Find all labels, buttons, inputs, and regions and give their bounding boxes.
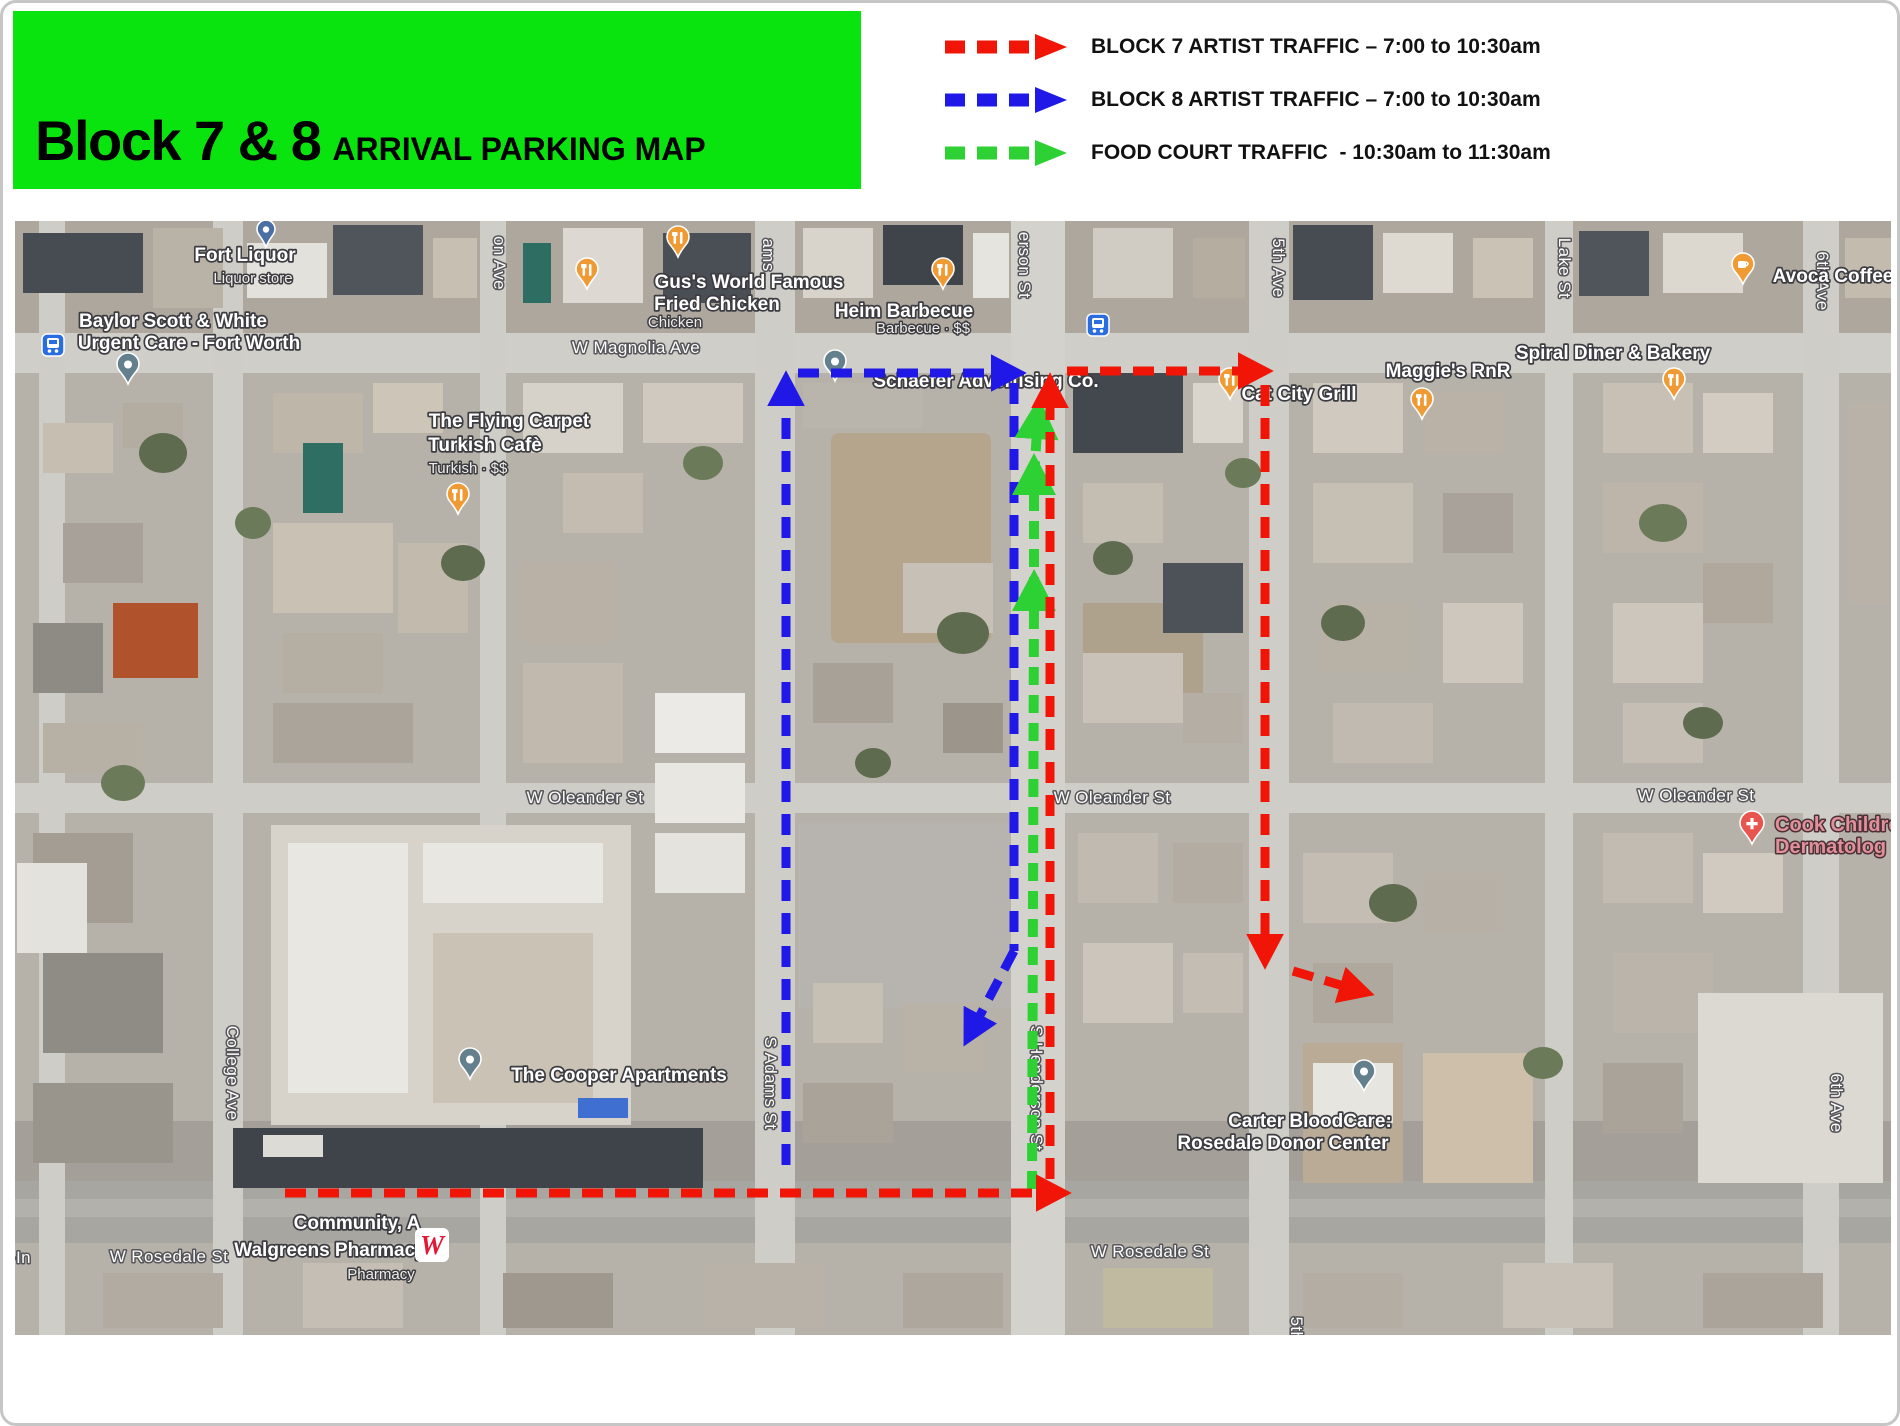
walgreens-w-glyph: W (420, 1230, 446, 1260)
poi-label: Avoca Coffee (1773, 266, 1891, 287)
street-label: 5th Ave (1269, 238, 1288, 297)
poi-label: Fried Chicken (654, 294, 780, 315)
legend-item-label: FOOD COURT TRAFFIC - 10:30am to 11:30am (1091, 141, 1551, 165)
page-title: Block 7 & 8 (35, 113, 320, 169)
poi-label: Heim Barbecue (835, 301, 973, 322)
poi-label: Chicken (648, 314, 702, 331)
legend-item-foodcourt: FOOD COURT TRAFFIC - 10:30am to 11:30am (941, 135, 1551, 171)
poi-label: Dermatolog (1775, 836, 1886, 858)
street-label: Lake St (1555, 238, 1574, 298)
legend-arrow-icon (941, 33, 1073, 61)
poi-label: Turkish · $$ (429, 460, 508, 477)
street-label: erson St (1015, 232, 1034, 299)
poi-label: Fort Liquor (194, 245, 296, 266)
street-label: S Adams St (761, 1037, 780, 1130)
title-group: Block 7 & 8 ARRIVAL PARKING MAP (35, 113, 706, 169)
slide: Block 7 & 8 ARRIVAL PARKING MAP BLOCK 7 … (0, 0, 1900, 1426)
street-label: W Magnolia Ave (572, 338, 700, 357)
legend-item-label: BLOCK 8 ARTIST TRAFFIC – 7:00 to 10:30am (1091, 88, 1541, 112)
walgreens-logo: W (415, 1228, 449, 1262)
legend-arrow-icon (941, 86, 1073, 114)
poi-label: Liquor store (213, 270, 292, 287)
poi-label: Turkish Cafè (428, 435, 542, 456)
poi-label: The Flying Carpet (429, 411, 590, 432)
legend-item-block7: BLOCK 7 ARTIST TRAFFIC – 7:00 to 10:30am (941, 29, 1551, 65)
poi-label: Community, A (294, 1213, 421, 1234)
street-label: W Oleander St (1638, 786, 1755, 805)
poi-label: Cat City Grill (1241, 384, 1356, 405)
legend-item-block8: BLOCK 8 ARTIST TRAFFIC – 7:00 to 10:30am (941, 82, 1551, 118)
street-label: 5th (1287, 1317, 1306, 1335)
poi-label: The Cooper Apartments (511, 1065, 727, 1086)
poi-label: Carter BloodCare: (1228, 1111, 1392, 1132)
street-label: 6th Ave (1827, 1073, 1846, 1132)
street-label: ams (759, 238, 778, 271)
poi-label: Pharmacy (347, 1266, 415, 1283)
title-banner: Block 7 & 8 ARRIVAL PARKING MAP (13, 11, 861, 189)
street-label: W Oleander St (1054, 788, 1171, 807)
poi-label: Cook Childre (1775, 814, 1891, 836)
page-subtitle: ARRIVAL PARKING MAP (332, 133, 705, 165)
poi-label: Spiral Diner & Bakery (1516, 343, 1711, 364)
street-label: on Ave (490, 236, 509, 290)
poi-label: Baylor Scott & White (79, 311, 267, 332)
map-canvas: W Magnolia AveW Oleander StW Oleander St… (15, 221, 1891, 1335)
legend-item-label: BLOCK 7 ARTIST TRAFFIC – 7:00 to 10:30am (1091, 35, 1541, 59)
street-label: W Oleander St (527, 788, 644, 807)
poi-label: Urgent Care - Fort Worth (78, 333, 300, 354)
street-label: -In (15, 1248, 31, 1267)
poi-label: Walgreens Pharmacy (234, 1240, 426, 1261)
bus-stop-icon (1087, 314, 1109, 336)
poi-label: Barbecue · $$ (876, 320, 971, 337)
street-label: College Ave (223, 1026, 242, 1121)
poi-label: Rosedale Donor Center (1177, 1133, 1389, 1154)
bus-stop-icon (42, 334, 64, 356)
street-label: W Rosedale St (110, 1247, 229, 1266)
poi-label: Maggie's RnR (1386, 361, 1511, 382)
legend-arrow-icon (941, 139, 1073, 167)
poi-label: Gus's World Famous (655, 272, 844, 293)
satellite-map: W Magnolia AveW Oleander StW Oleander St… (15, 221, 1891, 1335)
legend: BLOCK 7 ARTIST TRAFFIC – 7:00 to 10:30am… (941, 29, 1551, 171)
street-label: W Rosedale St (1091, 1242, 1210, 1261)
